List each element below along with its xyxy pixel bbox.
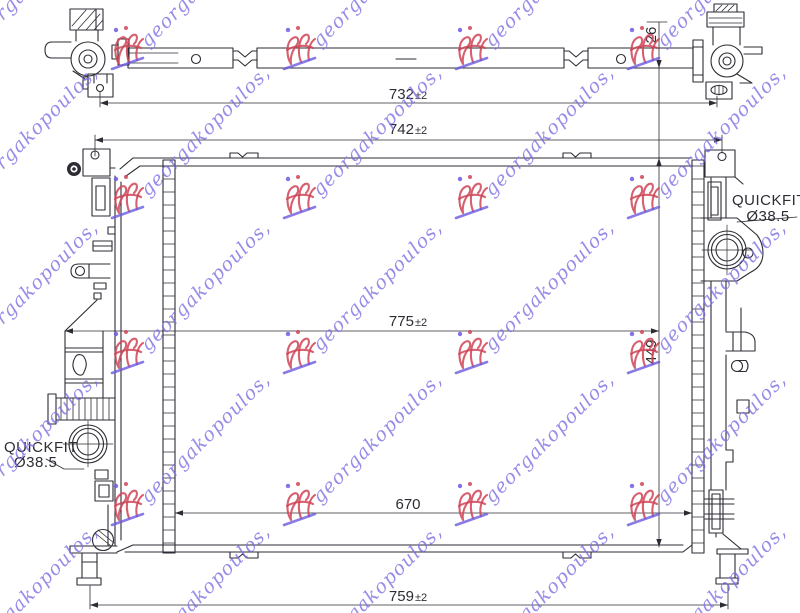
watermark-text: georgakopoulos, (0, 217, 103, 356)
keyhole-slot-right (732, 361, 749, 372)
radiator-technical-drawing: 732±2 742±2 775±2 670 759±2 26 449 QUICK… (0, 0, 800, 613)
watermark-text: georgakopoulos, (652, 521, 791, 613)
watermark-text: georgakopoulos, (480, 62, 619, 201)
watermark-text: georgakopoulos, (308, 217, 447, 356)
top-view-mount-pin-left (97, 85, 104, 92)
watermark-text: georgakopoulos, (480, 369, 619, 508)
watermark-text: georgakopoulos, (308, 369, 447, 508)
watermark-text: georgakopoulos, (0, 0, 103, 52)
watermark-text: georgakopoulos, (0, 521, 103, 613)
top-view-crossmember (128, 48, 693, 68)
watermark-text: georgakopoulos, (652, 0, 791, 52)
upper-mount-bracket-left (83, 149, 110, 176)
core-header-top (120, 153, 692, 176)
watermark-text: georgakopoulos, (480, 521, 619, 613)
quickfit-label-right: QUICKFIT (732, 192, 800, 209)
front-view (46, 149, 797, 585)
break-symbol-left (233, 47, 257, 69)
watermark-text: georgakopoulos, (0, 62, 103, 201)
left-tank (46, 149, 121, 585)
watermark-text: georgakopoulos, (652, 217, 791, 356)
watermark-text: georgakopoulos, (136, 369, 275, 508)
watermark-text: georgakopoulos, (308, 0, 447, 52)
dim-overall-width: 775±2 (389, 313, 427, 330)
watermark-text: georgakopoulos, (480, 0, 619, 52)
top-view-hole-right (617, 55, 626, 64)
top-view-hole-left (192, 55, 201, 64)
side-bracket-hole-left (76, 267, 85, 276)
watermark-text: georgakopoulos, (136, 62, 275, 201)
upper-mount-hole-right (718, 153, 726, 161)
drawing-canvas: 732±2 742±2 775±2 670 759±2 26 449 QUICK… (0, 0, 800, 613)
hook-bracket-right (726, 308, 755, 351)
break-symbol-right (564, 47, 588, 69)
dim-core-width: 670 (395, 496, 420, 513)
watermark-text: georgakopoulos, (136, 521, 275, 613)
watermark-text: georgakopoulos, (480, 217, 619, 356)
watermark-text: georgakopoulos, (136, 217, 275, 356)
quickfit-diameter-right: Ø38.5 (746, 208, 789, 225)
dim-lower-pin-distance: 759±2 (389, 588, 427, 605)
watermark-text: georgakopoulos, (652, 369, 791, 508)
watermark-text: georgakopoulos, (136, 0, 275, 52)
